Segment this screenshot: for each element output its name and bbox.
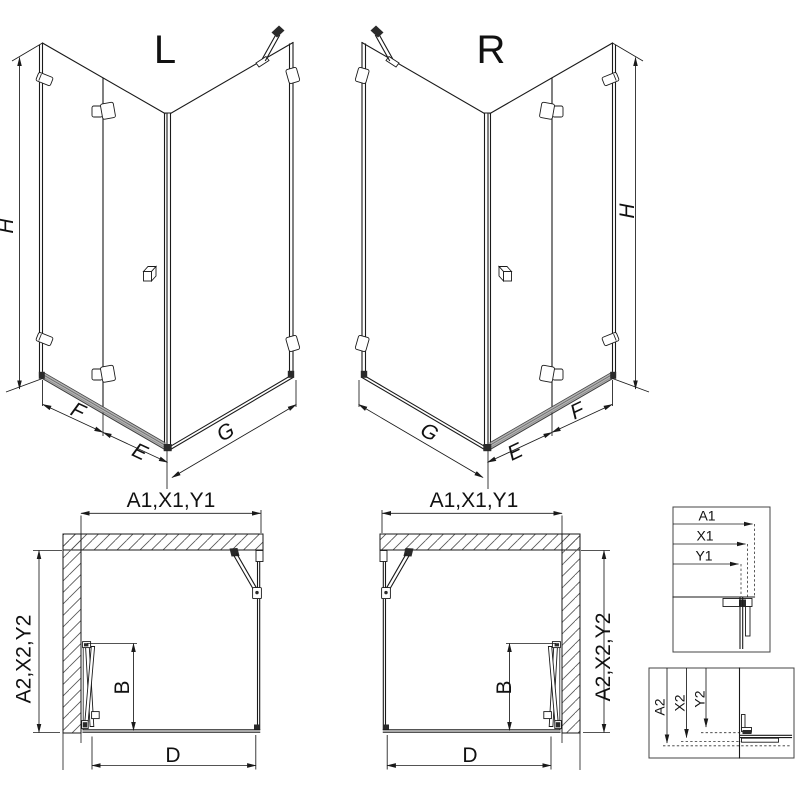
plan-dim-entry-label-r: D: [462, 744, 477, 767]
iso-view-l: L H F E G: [0, 26, 300, 490]
dim-label-h-r: H: [616, 203, 639, 219]
inset-width-detail: A1 X1 Y1: [673, 507, 770, 652]
inset-y1-label: Y1: [695, 548, 712, 564]
inset-depth-profile: [740, 668, 792, 758]
inset-x2-label: X2: [672, 694, 688, 711]
plan-dim-entry-label-l: D: [165, 744, 180, 767]
inset-a2-label: A2: [652, 698, 668, 715]
technical-drawing: L H F E G R H F E G A1,X1,Y1 A2,X2,Y2 B …: [0, 0, 800, 800]
dim-label-f-r: F: [567, 397, 589, 424]
plan-view-l: A1,X1,Y1 A2,X2,Y2 B D: [13, 489, 264, 770]
variant-label-l: L: [154, 28, 176, 72]
wall-hatch-r: [380, 534, 580, 733]
plan-view-r: A1,X1,Y1 A2,X2,Y2 B D: [380, 489, 615, 770]
dim-label-f-l: F: [67, 398, 89, 425]
inset-depth-detail: A2 X2 Y2: [649, 668, 794, 758]
plan-dim-width-label-l: A1,X1,Y1: [127, 489, 216, 512]
dim-label-e-r: E: [504, 438, 527, 465]
iso-view-r: R H F E G: [355, 26, 649, 490]
drawing-canvas: L H F E G R H F E G A1,X1,Y1 A2,X2,Y2 B …: [0, 0, 800, 800]
plan-dim-depth-label-l: A2,X2,Y2: [13, 615, 36, 704]
inset-a1-label: A1: [698, 508, 715, 524]
plan-dim-width-label-r: A1,X1,Y1: [430, 489, 519, 512]
inset-x1-label: X1: [696, 528, 713, 544]
wall-hatch-l: [63, 534, 263, 733]
plan-dim-door-label-r: B: [493, 680, 516, 694]
dim-label-e-l: E: [129, 439, 152, 466]
inset-width-profile: [673, 597, 755, 649]
dim-label-h-l: H: [0, 218, 18, 234]
plan-dim-depth-label-r: A2,X2,Y2: [592, 613, 615, 702]
plan-dim-door-label-l: B: [111, 680, 134, 694]
variant-label-r: R: [477, 28, 506, 72]
inset-y2-label: Y2: [692, 690, 708, 707]
